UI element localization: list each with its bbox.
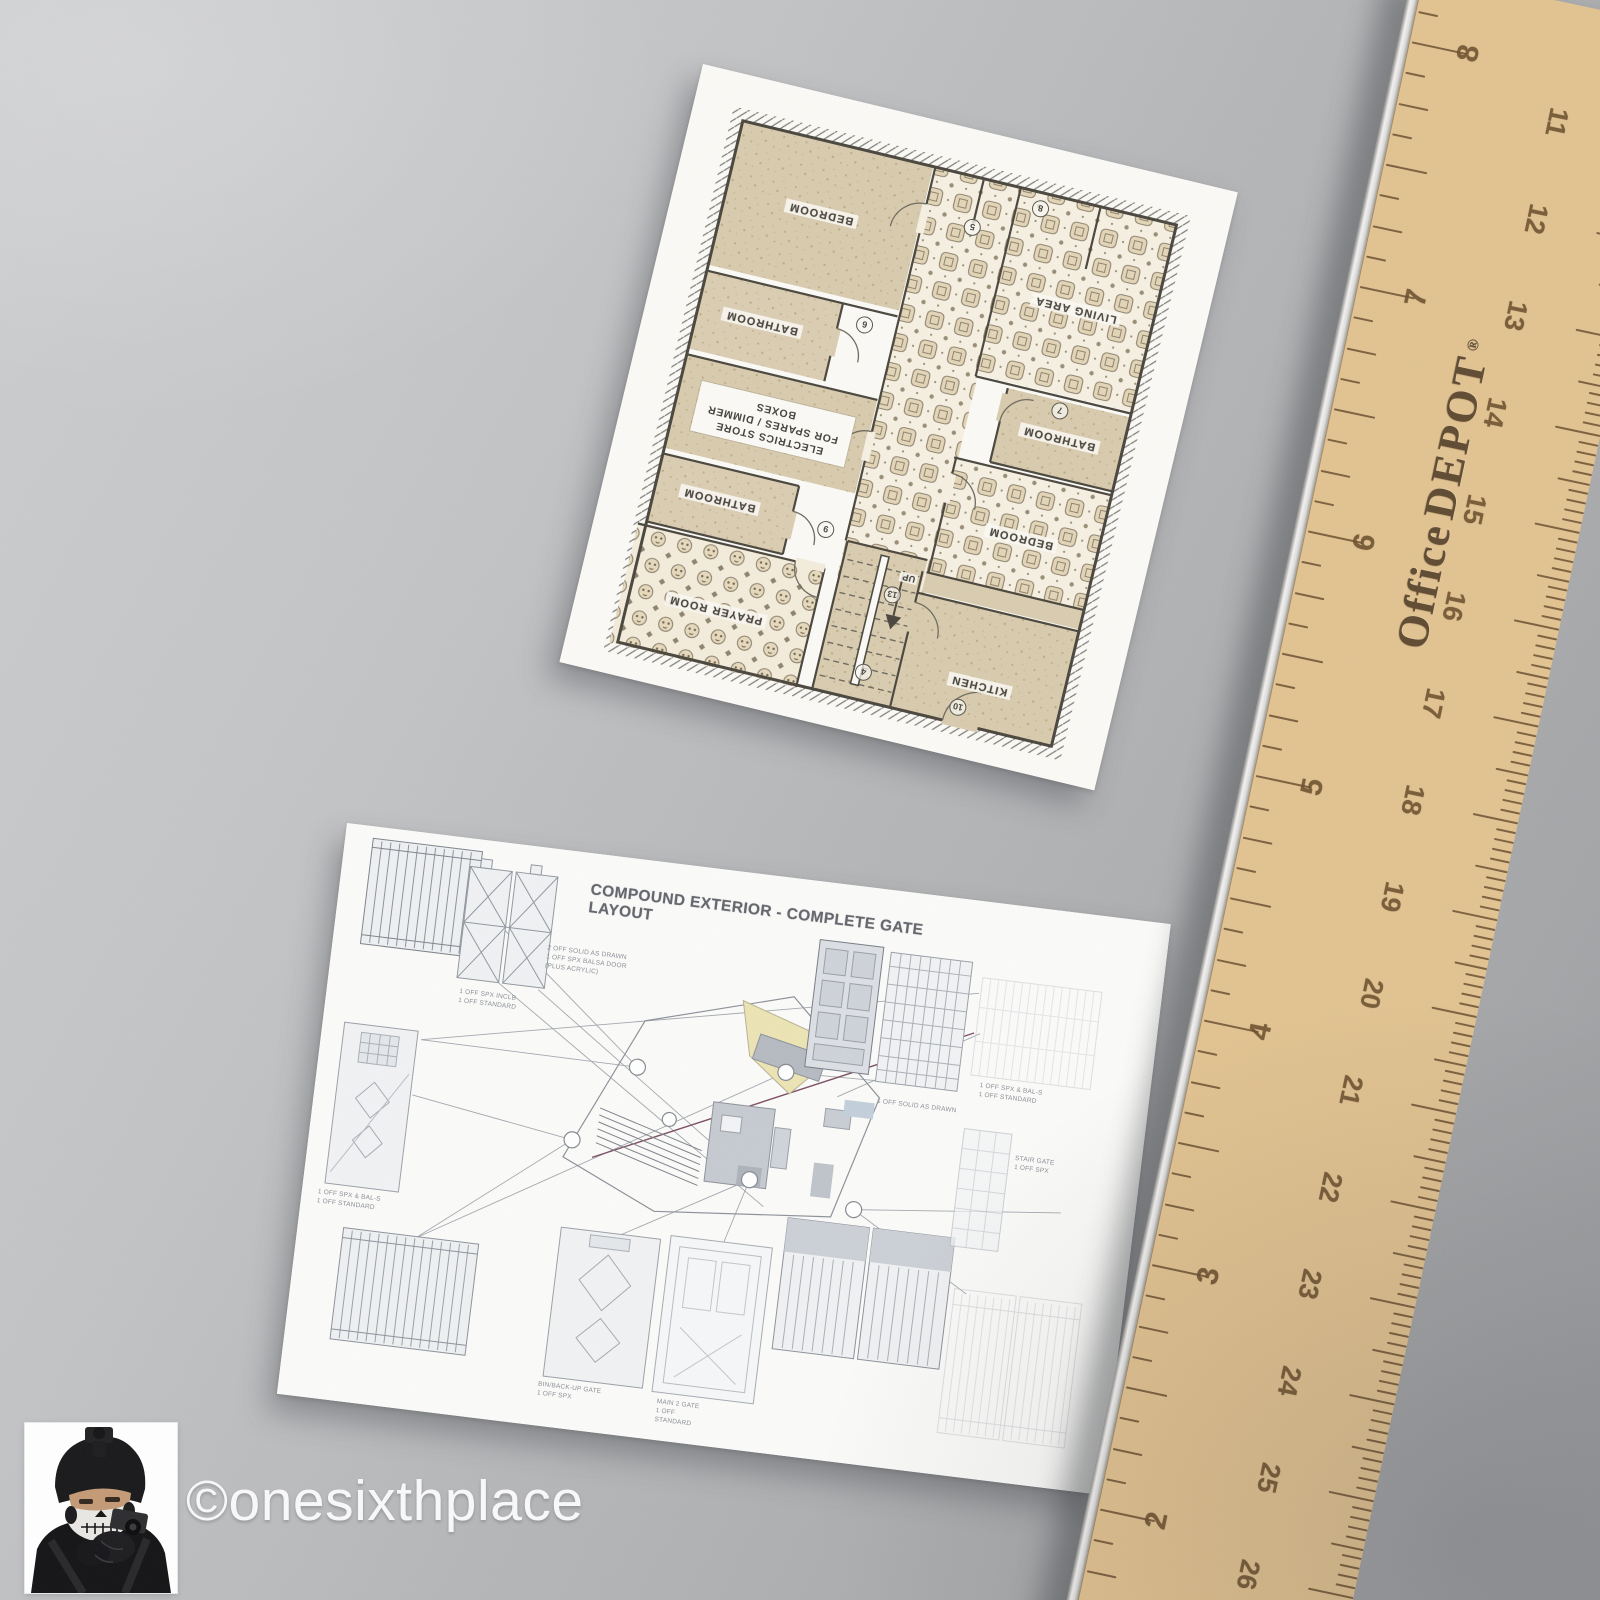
cm-tick-mark (1578, 441, 1598, 447)
inch-tick-mark (1301, 561, 1321, 567)
inch-tick-mark (1087, 1570, 1117, 1578)
product-photo-scene: BEDROOM BATHROOM BATHROOM PRAYER ROOM LI… (0, 0, 1600, 1600)
inch-tick-mark (1295, 592, 1325, 600)
inch-tick-mark (1243, 836, 1273, 844)
cm-tick-mark (1555, 426, 1600, 438)
gate-grid-door (875, 952, 972, 1091)
cm-tick-mark (1516, 670, 1549, 679)
cm-tick-mark (1490, 857, 1510, 863)
cm-tick-mark (1545, 596, 1565, 602)
inch-tick-mark (1275, 683, 1295, 689)
seller-avatar (25, 1423, 177, 1593)
cm-tick-mark (1525, 692, 1545, 698)
inch-tick-mark (1366, 255, 1386, 261)
inch-tick-mark (1314, 500, 1334, 506)
cm-tick-mark (1572, 470, 1592, 476)
cm-tick-mark (1582, 421, 1600, 427)
cm-tick-mark (1358, 1477, 1378, 1483)
cm-tick-mark (1496, 767, 1529, 776)
inch-tick-mark (1399, 103, 1429, 111)
cm-tick-mark (1512, 751, 1532, 757)
cm-tick-mark (1401, 1273, 1421, 1279)
cm-scale-number: 25 (1249, 1453, 1288, 1502)
cm-tick-mark (1434, 1118, 1454, 1124)
cm-tick-mark (1370, 1419, 1390, 1425)
inch-tick-mark (1158, 1233, 1178, 1239)
inch-scale-number: 2 (1136, 1496, 1178, 1546)
gate-diamond-door (543, 1227, 661, 1388)
inch-scale-number: 8 (1448, 28, 1490, 78)
cm-scale-number: 12 (1516, 194, 1555, 243)
cm-tick-mark (1533, 654, 1553, 660)
inch-tick-mark (1106, 1478, 1126, 1484)
cm-tick-mark (1387, 1341, 1407, 1347)
cm-tick-mark (1484, 886, 1504, 892)
cm-tick-mark (1431, 1007, 1476, 1019)
inch-tick-mark (1236, 867, 1256, 873)
cm-tick-mark (1531, 663, 1551, 669)
cm-tick-mark (1523, 702, 1543, 708)
cm-tick-mark (1331, 1542, 1364, 1551)
cm-tick-mark (1537, 634, 1557, 640)
inch-tick-mark (1405, 72, 1425, 78)
cm-tick-mark (1552, 567, 1572, 573)
inch-tick-mark (1386, 164, 1427, 175)
cm-tick-mark (1338, 1574, 1358, 1580)
inch-scale-number: 5 (1292, 762, 1334, 812)
inch-tick-mark (1217, 958, 1247, 966)
cm-scale-number: 19 (1372, 872, 1411, 921)
cm-tick-mark (1452, 910, 1497, 922)
inch-tick-mark (1353, 316, 1373, 322)
cm-tick-mark (1469, 954, 1489, 960)
cm-tick-mark (1418, 1196, 1438, 1202)
cm-tick-mark (1547, 586, 1567, 592)
cm-tick-mark (1412, 1225, 1432, 1231)
gate-slat-fence (330, 1228, 479, 1356)
cm-tick-mark (1455, 1022, 1475, 1028)
cm-tick-mark (1346, 1535, 1366, 1541)
cm-tick-mark (1534, 522, 1579, 534)
cm-tick-mark (1480, 905, 1500, 911)
inch-tick-mark (1145, 1295, 1165, 1301)
inch-tick-mark (1139, 1325, 1169, 1333)
cm-tick-mark (1502, 799, 1522, 805)
cm-tick-mark (1340, 1564, 1360, 1570)
watermark-text: ©onesixthplace (186, 1468, 584, 1534)
cm-tick-mark (1356, 1486, 1376, 1492)
cm-tick-mark (1368, 1428, 1388, 1434)
cm-tick-mark (1391, 1322, 1411, 1328)
cm-tick-mark (1308, 1588, 1353, 1600)
cm-tick-mark (1461, 993, 1481, 999)
inch-tick-mark (1178, 1142, 1219, 1153)
cm-tick-mark (1408, 1244, 1428, 1250)
cm-scale-number: 23 (1290, 1259, 1329, 1308)
gate-panel-door (652, 1236, 772, 1404)
inch-tick-mark (1392, 133, 1412, 139)
inch-tick-mark (1340, 378, 1360, 384)
cm-scale-number: 26 (1228, 1550, 1267, 1599)
cm-tick-mark (1463, 983, 1483, 989)
inch-tick-mark (1132, 1356, 1152, 1362)
cm-tick-mark (1403, 1264, 1423, 1270)
cm-tick-mark (1379, 1380, 1399, 1386)
cm-tick-mark (1521, 712, 1541, 718)
cm-tick-mark (1352, 1506, 1372, 1512)
cm-tick-mark (1372, 1348, 1405, 1357)
cm-tick-mark (1475, 864, 1508, 873)
cm-tick-mark (1348, 1525, 1368, 1531)
cm-tick-mark (1564, 508, 1584, 514)
cm-tick-mark (1453, 1031, 1473, 1037)
cm-tick-mark (1510, 760, 1530, 766)
cm-tick-mark (1535, 644, 1555, 650)
cm-tick-mark (1373, 1409, 1393, 1415)
cm-tick-mark (1420, 1186, 1440, 1192)
cm-tick-mark (1473, 935, 1493, 941)
inch-tick-mark (1282, 653, 1323, 664)
cm-tick-mark (1515, 741, 1535, 747)
cm-tick-mark (1500, 809, 1520, 815)
inch-tick-mark (1165, 1203, 1195, 1211)
cm-tick-mark (1432, 1128, 1452, 1134)
cm-tick-mark (1366, 1438, 1386, 1444)
inch-tick-mark (1093, 1539, 1113, 1545)
cm-tick-mark (1414, 1215, 1434, 1221)
cm-scale-number: 20 (1352, 969, 1391, 1018)
cm-tick-mark (1362, 1457, 1382, 1463)
gate-caption: MAIN 2 GATE 1 OFF STANDARD (654, 1398, 700, 1429)
inch-tick-mark (1113, 1447, 1143, 1455)
inch-tick-mark (1223, 928, 1243, 934)
inch-tick-mark (1249, 806, 1269, 812)
cm-tick-mark (1554, 557, 1574, 563)
cm-scale-number: 11 (1537, 97, 1576, 146)
cm-tick-mark (1514, 619, 1559, 631)
cm-tick-mark (1440, 1089, 1460, 1095)
cm-tick-mark (1383, 1361, 1403, 1367)
cm-tick-mark (1381, 1370, 1401, 1376)
cm-tick-mark (1557, 477, 1590, 486)
cm-tick-mark (1445, 1070, 1465, 1076)
cm-tick-mark (1449, 1051, 1469, 1057)
cm-tick-mark (1434, 1058, 1467, 1067)
inch-tick-mark (1171, 1172, 1191, 1178)
cm-tick-mark (1349, 1394, 1394, 1406)
inch-tick-mark (1418, 11, 1438, 17)
cm-tick-mark (1568, 489, 1588, 495)
cm-tick-mark (1496, 828, 1516, 834)
inch-tick-mark (1184, 1111, 1204, 1117)
cm-tick-mark (1422, 1177, 1442, 1183)
cm-tick-mark (1492, 847, 1512, 853)
cm-tick-mark (1504, 789, 1524, 795)
cm-tick-mark (1459, 1002, 1479, 1008)
inch-scale-number: 4 (1240, 1007, 1282, 1057)
cm-tick-mark (1342, 1554, 1362, 1560)
cm-tick-mark (1576, 329, 1600, 341)
cm-tick-mark (1389, 1332, 1409, 1338)
cm-tick-mark (1493, 716, 1538, 728)
cm-tick-mark (1566, 499, 1586, 505)
cm-tick-mark (1411, 1103, 1456, 1115)
cm-scale-number: 24 (1269, 1356, 1308, 1405)
inch-tick-mark (1119, 1417, 1139, 1423)
cm-tick-mark (1454, 961, 1487, 970)
cm-tick-mark (1475, 925, 1495, 931)
inch-tick-mark (1288, 622, 1308, 628)
cm-tick-mark (1527, 683, 1547, 689)
cm-tick-mark (1482, 896, 1502, 902)
cm-tick-mark (1589, 392, 1600, 398)
inch-tick-mark (1126, 1386, 1167, 1397)
cm-tick-mark (1593, 373, 1600, 379)
gate-layout-sheet: COMPOUND EXTERIOR - COMPLETE GATE LAYOUT… (277, 823, 1171, 1495)
cm-tick-mark (1410, 1235, 1430, 1241)
cm-tick-mark (1595, 363, 1600, 369)
inch-tick-mark (1327, 439, 1347, 445)
cm-tick-mark (1486, 876, 1506, 882)
cm-tick-mark (1578, 380, 1600, 389)
cm-tick-mark (1393, 1251, 1426, 1260)
tactical-figure-image (25, 1423, 177, 1593)
cm-tick-mark (1428, 1148, 1448, 1154)
inch-tick-mark (1269, 714, 1299, 722)
cm-tick-mark (1558, 537, 1578, 543)
cm-tick-mark (1585, 412, 1600, 418)
cm-tick-mark (1562, 518, 1582, 524)
cm-tick-mark (1393, 1312, 1413, 1318)
cm-tick-mark (1370, 1297, 1415, 1309)
cm-tick-mark (1596, 232, 1600, 244)
inch-scale-number: 6 (1344, 517, 1386, 567)
cm-tick-mark (1352, 1445, 1385, 1454)
cm-tick-mark (1377, 1390, 1397, 1396)
cm-tick-mark (1430, 1138, 1450, 1144)
cm-tick-mark (1506, 780, 1526, 786)
cm-tick-mark (1335, 1583, 1355, 1589)
cm-tick-mark (1574, 460, 1594, 466)
cm-tick-mark (1471, 944, 1491, 950)
cm-tick-mark (1360, 1467, 1380, 1473)
inch-tick-mark (1321, 469, 1351, 477)
cm-tick-mark (1413, 1155, 1446, 1164)
cm-scale-number: 21 (1331, 1066, 1370, 1115)
inch-tick-mark (1230, 897, 1271, 908)
cm-tick-mark (1329, 1491, 1374, 1503)
inch-tick-mark (1379, 194, 1399, 200)
cm-tick-mark (1438, 1099, 1458, 1105)
cm-tick-mark (1399, 1283, 1419, 1289)
cm-tick-mark (1350, 1516, 1370, 1522)
cm-scale-number: 22 (1310, 1163, 1349, 1212)
cm-tick-mark (1517, 731, 1537, 737)
floor-plan-sheet: BEDROOM BATHROOM BATHROOM PRAYER ROOM LI… (559, 64, 1237, 790)
cm-tick-mark (1543, 605, 1563, 611)
cm-tick-mark (1541, 615, 1561, 621)
cm-tick-mark (1465, 973, 1485, 979)
floor-plan-drawing (559, 64, 1237, 790)
inch-tick-mark (1334, 408, 1375, 419)
cm-tick-mark (1473, 813, 1518, 825)
cm-scale-number: 18 (1393, 775, 1432, 824)
inch-scale-number: 3 (1188, 1251, 1230, 1301)
cm-tick-mark (1397, 1293, 1417, 1299)
inch-tick-mark (1210, 989, 1230, 995)
cm-tick-mark (1451, 1041, 1471, 1047)
inch-scale-number: 7 (1396, 273, 1438, 323)
inch-tick-mark (1191, 1081, 1221, 1089)
inch-tick-mark (1373, 225, 1403, 233)
registered-mark: ® (1464, 336, 1485, 353)
cm-tick-mark (1587, 402, 1600, 408)
cm-tick-mark (1390, 1200, 1435, 1212)
inch-tick-mark (1347, 347, 1377, 355)
inch-tick-mark (1197, 1050, 1217, 1056)
cm-tick-mark (1424, 1167, 1444, 1173)
cm-tick-mark (1576, 450, 1596, 456)
cm-tick-mark (1443, 1080, 1463, 1086)
inch-tick-mark (1262, 744, 1282, 750)
cm-tick-mark (1537, 574, 1570, 583)
cm-tick-mark (1556, 547, 1576, 553)
cm-tick-mark (1494, 838, 1514, 844)
